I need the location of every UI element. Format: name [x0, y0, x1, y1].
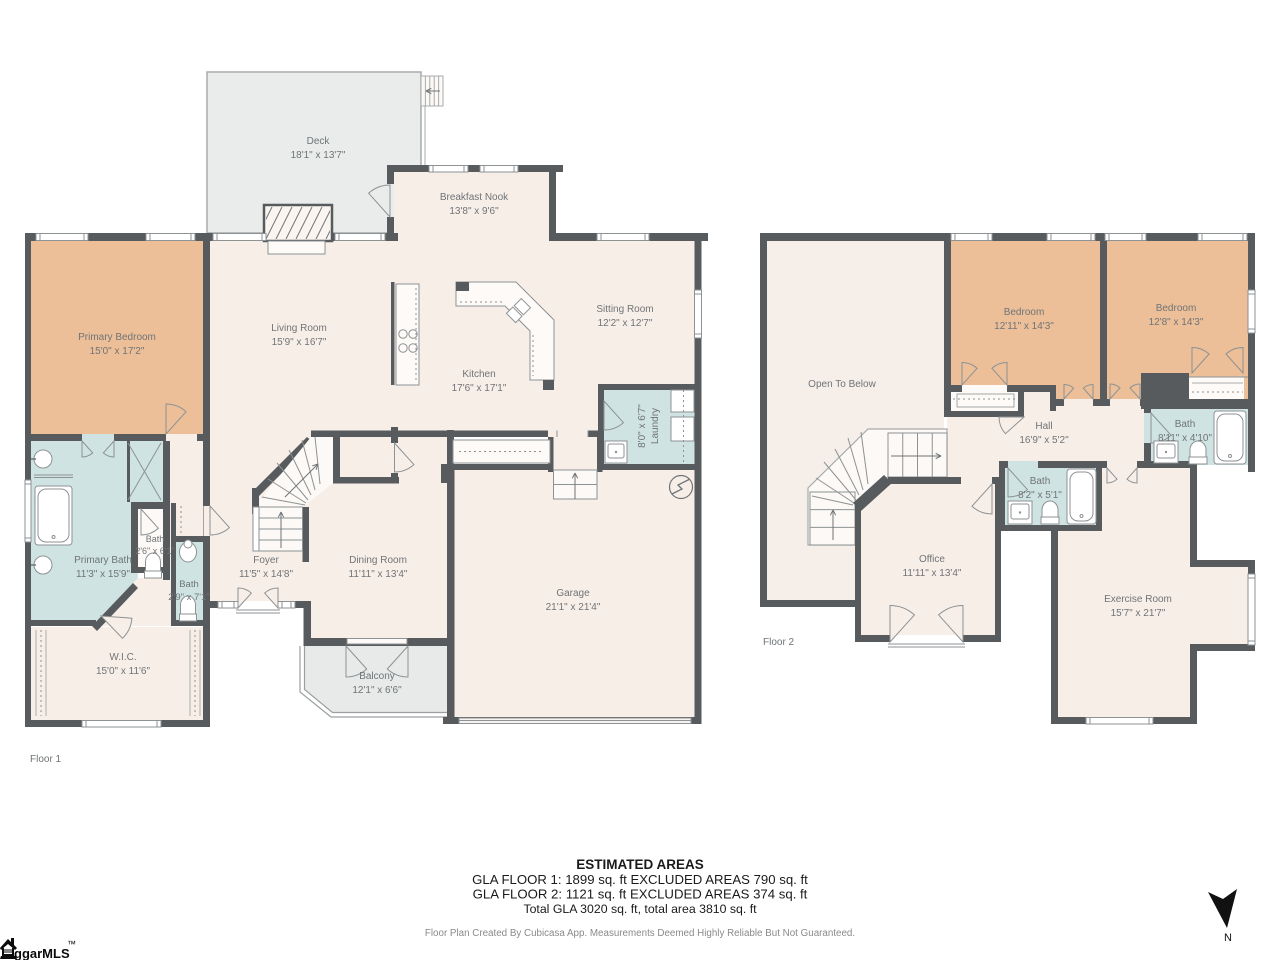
- svg-text:Open To Below: Open To Below: [808, 379, 876, 390]
- svg-text:11'11" x 13'4": 11'11" x 13'4": [349, 569, 408, 580]
- svg-text:2'9" x 7'1": 2'9" x 7'1": [168, 592, 210, 603]
- svg-text:11'5" x 14'8": 11'5" x 14'8": [239, 569, 294, 580]
- svg-text:15'0" x 17'2": 15'0" x 17'2": [90, 346, 145, 357]
- svg-text:16'9" x 5'2": 16'9" x 5'2": [1019, 435, 1069, 446]
- svg-text:Bath: Bath: [179, 579, 199, 590]
- svg-text:™: ™: [67, 939, 76, 949]
- svg-text:ggarMLS: ggarMLS: [14, 946, 70, 960]
- svg-text:GLA FLOOR 1: 1899 sq. ft EXCLU: GLA FLOOR 1: 1899 sq. ft EXCLUDED AREAS …: [472, 872, 808, 887]
- svg-text:8'0" x 6'7": 8'0" x 6'7": [637, 404, 648, 448]
- svg-text:12'11" x 14'3": 12'11" x 14'3": [994, 321, 1054, 332]
- svg-text:Bath: Bath: [146, 534, 165, 544]
- svg-text:11'11" x 13'4": 11'11" x 13'4": [903, 568, 962, 579]
- svg-text:Floor 2: Floor 2: [763, 637, 795, 648]
- svg-text:8'2" x 5'1": 8'2" x 5'1": [1018, 490, 1062, 501]
- svg-text:GLA FLOOR 2: 1121 sq. ft EXCLU: GLA FLOOR 2: 1121 sq. ft EXCLUDED AREAS …: [473, 887, 808, 902]
- svg-text:12'1" x 6'6": 12'1" x 6'6": [352, 685, 402, 696]
- svg-text:N: N: [1224, 932, 1232, 944]
- svg-text:Sitting Room: Sitting Room: [596, 304, 653, 315]
- svg-text:12'2" x 12'7": 12'2" x 12'7": [598, 318, 653, 329]
- svg-text:Primary Bedroom: Primary Bedroom: [78, 332, 156, 343]
- svg-text:15'7" x 21'7": 15'7" x 21'7": [1111, 608, 1166, 619]
- svg-text:21'1" x 21'4": 21'1" x 21'4": [546, 602, 601, 613]
- svg-text:2'6" x 6'1": 2'6" x 6'1": [135, 546, 174, 556]
- svg-text:Dining Room: Dining Room: [349, 555, 407, 566]
- svg-text:Deck: Deck: [307, 136, 331, 147]
- svg-text:W.I.C.: W.I.C.: [109, 652, 136, 663]
- svg-text:Foyer: Foyer: [253, 555, 279, 566]
- svg-text:15'9" x 16'7": 15'9" x 16'7": [272, 337, 327, 348]
- svg-text:17'6" x 17'1": 17'6" x 17'1": [452, 383, 507, 394]
- svg-text:11'3" x 15'9": 11'3" x 15'9": [76, 569, 131, 580]
- svg-text:8'11" x 4'10": 8'11" x 4'10": [1158, 433, 1213, 444]
- svg-text:Bedroom: Bedroom: [1156, 303, 1197, 314]
- svg-text:Floor 1: Floor 1: [30, 754, 62, 765]
- svg-text:Total GLA 3020 sq. ft, total a: Total GLA 3020 sq. ft, total area 3810 s…: [523, 902, 757, 916]
- svg-text:Exercise Room: Exercise Room: [1104, 594, 1172, 605]
- svg-text:Hall: Hall: [1035, 421, 1052, 432]
- svg-text:ESTIMATED AREAS: ESTIMATED AREAS: [576, 857, 704, 872]
- svg-text:13'8" x 9'6": 13'8" x 9'6": [449, 206, 499, 217]
- svg-text:Garage: Garage: [556, 588, 590, 599]
- svg-text:Bath: Bath: [1175, 419, 1196, 430]
- svg-text:Breakfast Nook: Breakfast Nook: [440, 192, 509, 203]
- svg-text:12'8" x 14'3": 12'8" x 14'3": [1149, 317, 1204, 328]
- svg-text:Office: Office: [919, 554, 945, 565]
- svg-text:Living Room: Living Room: [271, 323, 327, 334]
- svg-text:Bath: Bath: [1030, 476, 1051, 487]
- svg-text:Kitchen: Kitchen: [462, 369, 495, 380]
- svg-text:15'0" x 11'6": 15'0" x 11'6": [96, 666, 151, 677]
- svg-text:Floor Plan Created By Cubicasa: Floor Plan Created By Cubicasa App. Meas…: [425, 928, 855, 939]
- svg-text:Bedroom: Bedroom: [1004, 307, 1045, 318]
- svg-text:Primary Bath: Primary Bath: [74, 555, 132, 566]
- svg-text:18'1" x 13'7": 18'1" x 13'7": [291, 150, 346, 161]
- svg-text:Balcony: Balcony: [359, 671, 395, 682]
- svg-text:Laundry: Laundry: [650, 408, 661, 444]
